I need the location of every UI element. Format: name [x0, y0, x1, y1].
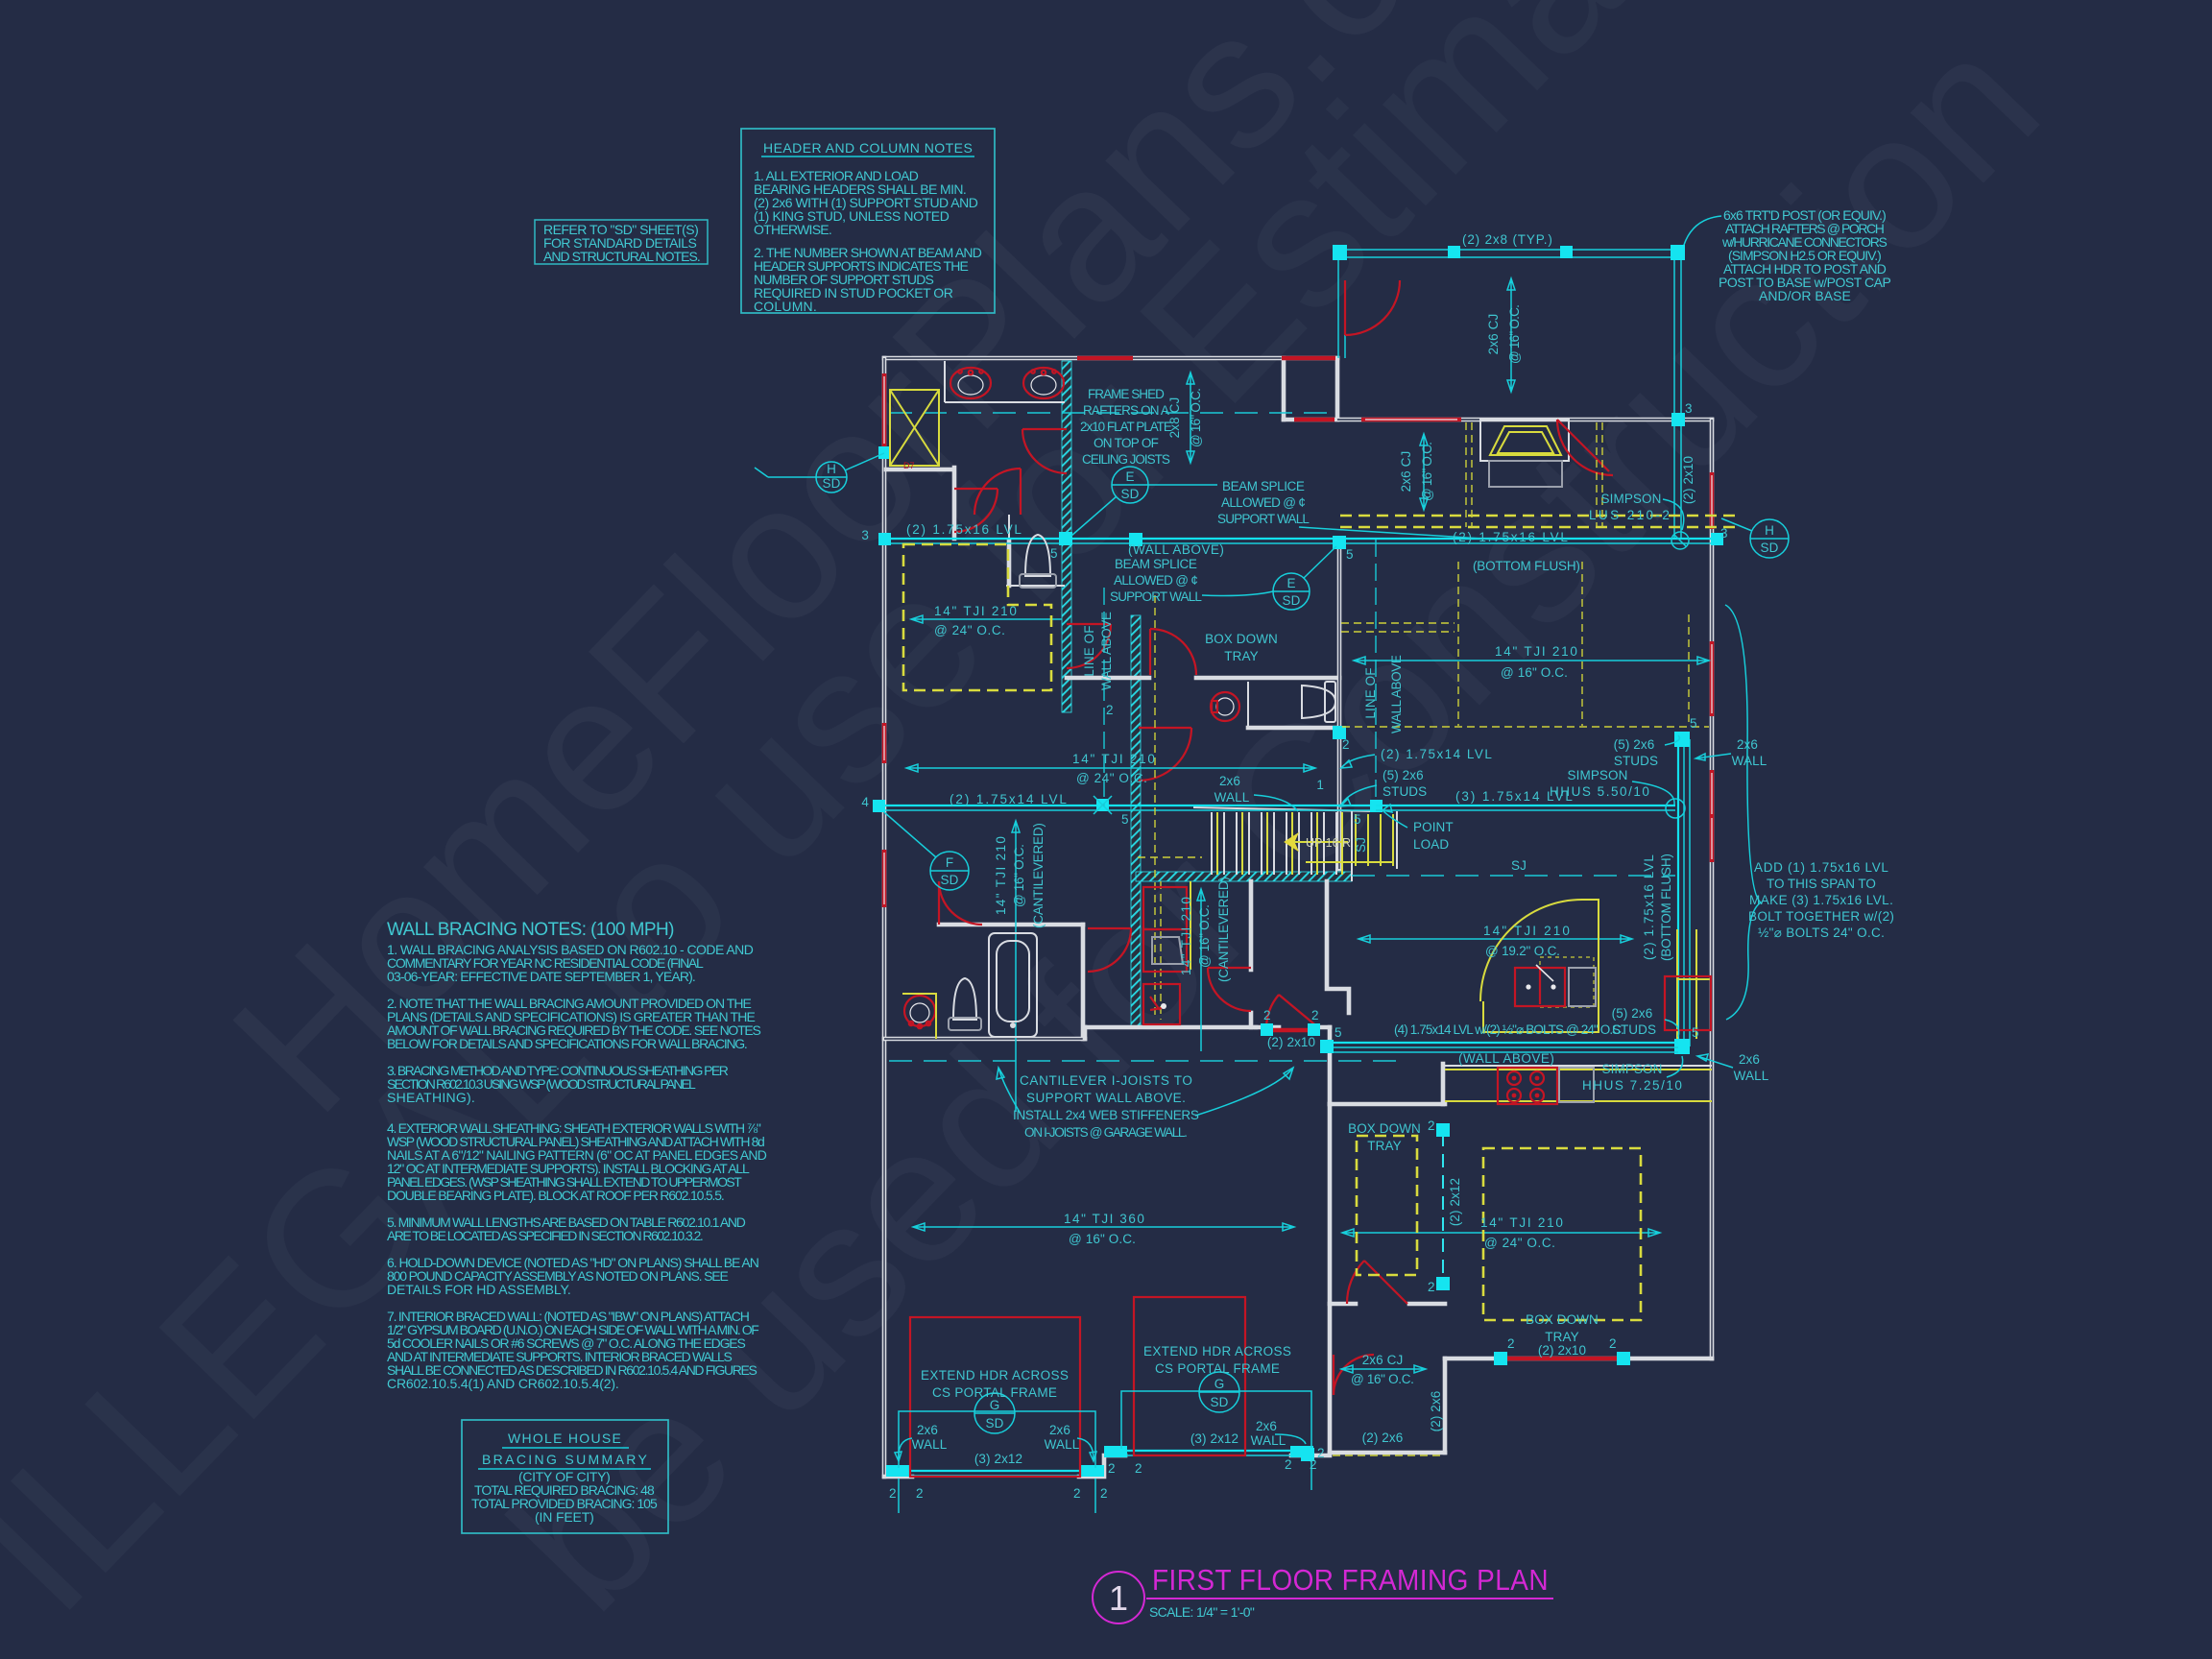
svg-text:WALL: WALL [1045, 1437, 1080, 1452]
svg-text:WALL: WALL [1214, 790, 1250, 805]
svg-text:(4) 1.75x14 LVL w/(2) ½"⌀ BOLT: (4) 1.75x14 LVL w/(2) ½"⌀ BOLTS @ 24" O.… [1394, 1022, 1624, 1037]
svg-text:2: 2 [1609, 1336, 1617, 1351]
svg-text:(5) 2x6: (5) 2x6 [1614, 737, 1655, 752]
svg-text:½"⌀ BOLTS 24" O.C.: ½"⌀ BOLTS 24" O.C. [1758, 926, 1885, 940]
svg-text:5: 5 [1692, 1025, 1699, 1040]
svg-text:ON I-JOISTS @ GARAGE WALL.: ON I-JOISTS @ GARAGE WALL. [1024, 1125, 1188, 1140]
svg-text:SD: SD [823, 476, 841, 491]
svg-text:(2) 1.75x16 LVL: (2) 1.75x16 LVL [1453, 530, 1568, 544]
svg-text:2: 2 [1263, 1008, 1271, 1022]
svg-text:@ 16" O.C.: @ 16" O.C. [1507, 304, 1522, 364]
svg-text:HEADER AND COLUMN NOTES: HEADER AND COLUMN NOTES [763, 140, 973, 156]
svg-text:2: 2 [1073, 1486, 1081, 1501]
svg-text:INSTALL 2x4 WEB STIFFENERS: INSTALL 2x4 WEB STIFFENERS [1013, 1108, 1199, 1122]
svg-text:E: E [1125, 469, 1134, 484]
svg-text:@ 24" O.C.: @ 24" O.C. [1484, 1236, 1555, 1250]
svg-text:SUPPORT WALL: SUPPORT WALL [1217, 512, 1310, 526]
svg-text:3: 3 [861, 528, 869, 542]
svg-text:ON TOP OF: ON TOP OF [1094, 436, 1159, 450]
svg-text:14" TJI 360: 14" TJI 360 [1064, 1212, 1144, 1226]
svg-text:(IN FEET): (IN FEET) [535, 1509, 594, 1525]
svg-text:@ 16" O.C.: @ 16" O.C. [1501, 665, 1568, 680]
svg-text:2: 2 [1428, 1280, 1435, 1294]
svg-text:H: H [827, 462, 836, 476]
svg-text:2x6: 2x6 [1737, 737, 1758, 752]
svg-text:WHOLE HOUSE: WHOLE HOUSE [508, 1431, 621, 1446]
svg-text:MAKE (3) 1.75x16 LVL.: MAKE (3) 1.75x16 LVL. [1749, 893, 1893, 907]
svg-text:(BOTTOM FLUSH): (BOTTOM FLUSH) [1473, 559, 1580, 573]
svg-text:@ 24" O.C.: @ 24" O.C. [934, 623, 1005, 637]
svg-text:3: 3 [1720, 526, 1728, 541]
svg-text:2x8 CJ: 2x8 CJ [1167, 397, 1182, 439]
svg-text:(CANTILEVERED): (CANTILEVERED) [1031, 823, 1046, 928]
svg-text:2x6: 2x6 [917, 1423, 938, 1437]
svg-text:5: 5 [1690, 716, 1697, 731]
svg-text:2: 2 [1135, 1461, 1142, 1476]
svg-text:CANTILEVER I-JOISTS TO: CANTILEVER I-JOISTS TO [1020, 1073, 1192, 1088]
svg-text:ALLOWED @ ¢: ALLOWED @ ¢ [1221, 495, 1306, 510]
svg-text:TRAY: TRAY [1224, 649, 1258, 663]
svg-text:WALL: WALL [1734, 1069, 1769, 1083]
svg-text:ADD (1) 1.75x16 LVL: ADD (1) 1.75x16 LVL [1754, 860, 1888, 875]
svg-text:DOUBLE BEARING PLATE). BLOCK A: DOUBLE BEARING PLATE). BLOCK AT ROOF PER… [387, 1188, 725, 1203]
svg-text:CEILING JOISTS: CEILING JOISTS [1082, 452, 1170, 467]
svg-text:2: 2 [1100, 1486, 1108, 1501]
svg-text:SD: SD [1283, 593, 1301, 608]
svg-text:HHUS 7.25/10: HHUS 7.25/10 [1582, 1078, 1682, 1093]
svg-text:2x6 CJ: 2x6 CJ [1486, 314, 1501, 355]
svg-text:BEAM SPLICE: BEAM SPLICE [1115, 557, 1197, 571]
svg-text:2x6 CJ: 2x6 CJ [1399, 451, 1413, 493]
svg-text:(2) 2x10: (2) 2x10 [1538, 1343, 1586, 1358]
svg-text:BELOW FOR DETAILS AND SPECIFIC: BELOW FOR DETAILS AND SPECIFICATIONS FOR… [387, 1036, 748, 1051]
svg-text:LINE OF: LINE OF [1363, 667, 1378, 718]
svg-text:BOX DOWN: BOX DOWN [1205, 632, 1278, 646]
svg-text:HHUS 5.50/10: HHUS 5.50/10 [1550, 784, 1649, 799]
svg-text:EXTEND HDR ACROSS: EXTEND HDR ACROSS [1143, 1344, 1291, 1358]
svg-text:2: 2 [1311, 1008, 1319, 1022]
svg-text:FIRST FLOOR FRAMING PLAN: FIRST FLOOR FRAMING PLAN [1152, 1563, 1549, 1597]
svg-text:2: 2 [1285, 1457, 1292, 1472]
svg-text:2: 2 [1507, 1336, 1515, 1351]
svg-text:WALL: WALL [1251, 1433, 1286, 1448]
svg-text:(2) 1.75x16 LVL: (2) 1.75x16 LVL [906, 522, 1022, 537]
svg-text:5: 5 [1334, 1025, 1342, 1040]
svg-text:SD: SD [1761, 541, 1779, 555]
svg-text:14" TJI 210: 14" TJI 210 [1072, 752, 1155, 766]
svg-text:WALL: WALL [1732, 754, 1767, 768]
svg-text:DETAILS FOR HD ASSEMBLY.: DETAILS FOR HD ASSEMBLY. [387, 1282, 571, 1297]
svg-text:(2) 2x6: (2) 2x6 [1362, 1431, 1404, 1445]
svg-text:@ 16" O.C.: @ 16" O.C. [1197, 904, 1212, 968]
svg-text:2x6 CJ: 2x6 CJ [1362, 1353, 1404, 1367]
svg-text:@ 19.2" O.C.: @ 19.2" O.C. [1485, 944, 1560, 958]
svg-text:2x10 FLAT PLATE: 2x10 FLAT PLATE [1080, 420, 1172, 434]
svg-text:(2) 2x10: (2) 2x10 [1681, 456, 1695, 504]
svg-text:14" TJI 210: 14" TJI 210 [1495, 644, 1577, 659]
svg-text:(2) 1.75x16 LVL: (2) 1.75x16 LVL [1642, 854, 1656, 960]
svg-text:(5) 2x6: (5) 2x6 [1612, 1006, 1653, 1021]
svg-text:SIMPSON: SIMPSON [1568, 768, 1628, 782]
svg-text:5: 5 [1121, 812, 1129, 827]
svg-text:@ 24" O.C.: @ 24" O.C. [1076, 771, 1147, 785]
svg-text:(2) 2x8 (TYP.): (2) 2x8 (TYP.) [1462, 232, 1552, 247]
svg-text:SCALE: 1/4" = 1'-0": SCALE: 1/4" = 1'-0" [1149, 1604, 1255, 1620]
svg-text:(2) 2x6: (2) 2x6 [1429, 1391, 1443, 1432]
svg-text:(WALL ABOVE): (WALL ABOVE) [1128, 542, 1224, 557]
svg-text:(3) 2x12: (3) 2x12 [1190, 1431, 1238, 1446]
svg-text:1: 1 [1316, 778, 1324, 792]
svg-text:1: 1 [1109, 1578, 1128, 1618]
svg-text:WALL ABOVE: WALL ABOVE [1099, 612, 1114, 690]
svg-text:03-06-YEAR: EFFECTIVE DATE SEP: 03-06-YEAR: EFFECTIVE DATE SEPTEMBER 1, … [387, 969, 696, 984]
svg-text:14" TJI 210: 14" TJI 210 [1179, 897, 1193, 975]
svg-text:TO THIS SPAN TO: TO THIS SPAN TO [1767, 877, 1876, 891]
svg-text:SJ: SJ [1354, 837, 1368, 853]
svg-text:@ 16" O.C.: @ 16" O.C. [1351, 1372, 1414, 1386]
svg-text:@ 16" O.C.: @ 16" O.C. [1189, 388, 1203, 447]
svg-text:5: 5 [1354, 812, 1361, 827]
svg-text:BOX DOWN: BOX DOWN [1348, 1121, 1421, 1136]
svg-text:2: 2 [1428, 1118, 1435, 1133]
svg-text:2: 2 [1317, 1446, 1325, 1460]
svg-text:2: 2 [1108, 1461, 1116, 1476]
svg-text:COLUMN.: COLUMN. [754, 299, 817, 314]
svg-text:3: 3 [1685, 401, 1693, 416]
svg-text:14" TJI 210: 14" TJI 210 [994, 836, 1008, 915]
svg-text:LINE OF: LINE OF [1082, 625, 1096, 676]
svg-text:BOLT TOGETHER w/(2): BOLT TOGETHER w/(2) [1748, 909, 1894, 924]
svg-text:AND STRUCTURAL NOTES.: AND STRUCTURAL NOTES. [543, 249, 701, 264]
svg-text:WALL: WALL [912, 1437, 948, 1452]
svg-text:SIMPSON: SIMPSON [1602, 1062, 1663, 1076]
svg-text:D7: D7 [903, 461, 915, 470]
svg-text:2x6: 2x6 [1049, 1423, 1070, 1437]
svg-text:BRACING SUMMARY: BRACING SUMMARY [482, 1452, 647, 1467]
svg-text:4: 4 [861, 795, 869, 809]
svg-text:SD: SD [1211, 1395, 1229, 1409]
svg-text:CR602.10.5.4(1) AND CR602.10.5: CR602.10.5.4(1) AND CR602.10.5.4(2). [387, 1376, 619, 1391]
svg-text:STUDS: STUDS [1382, 784, 1427, 799]
svg-text:(2) 2x12: (2) 2x12 [1448, 1178, 1462, 1226]
svg-text:LUS 210-2: LUS 210-2 [1589, 508, 1670, 522]
svg-text:SUPPORT WALL ABOVE.: SUPPORT WALL ABOVE. [1026, 1091, 1186, 1105]
svg-text:2: 2 [1106, 703, 1114, 717]
svg-text:H: H [1765, 523, 1774, 538]
svg-text:(2) 1.75x14 LVL: (2) 1.75x14 LVL [950, 792, 1067, 806]
svg-text:STUDS: STUDS [1612, 1022, 1656, 1037]
svg-text:@ 16" O.C.: @ 16" O.C. [1069, 1232, 1136, 1246]
svg-text:2: 2 [1342, 737, 1350, 752]
svg-text:(BOTTOM FLUSH): (BOTTOM FLUSH) [1659, 854, 1673, 961]
svg-text:EXTEND HDR ACROSS: EXTEND HDR ACROSS [921, 1368, 1069, 1382]
svg-text:SD: SD [986, 1416, 1004, 1431]
svg-text:ALLOWED @ ¢: ALLOWED @ ¢ [1114, 573, 1198, 588]
svg-text:5: 5 [1050, 546, 1058, 561]
svg-text:5: 5 [1346, 547, 1354, 562]
svg-text:OTHERWISE.: OTHERWISE. [754, 222, 832, 237]
svg-text:(CANTILEVERED): (CANTILEVERED) [1216, 877, 1231, 982]
svg-text:@ 16" O.C.: @ 16" O.C. [1012, 844, 1026, 907]
svg-text:SHEATHING).: SHEATHING). [387, 1090, 475, 1105]
svg-text:LOAD: LOAD [1413, 837, 1449, 852]
svg-text:14" TJI 210: 14" TJI 210 [1483, 924, 1570, 938]
svg-text:AND/OR BASE: AND/OR BASE [1759, 288, 1851, 303]
svg-text:2x6: 2x6 [1219, 774, 1240, 788]
svg-text:SD: SD [1121, 487, 1140, 501]
svg-text:RAFTERS ON A: RAFTERS ON A [1083, 403, 1169, 418]
svg-text:2x6: 2x6 [1256, 1419, 1277, 1433]
svg-text:SJ: SJ [1511, 858, 1527, 873]
svg-text:(5) 2x6: (5) 2x6 [1382, 768, 1424, 782]
svg-text:2x6: 2x6 [1739, 1052, 1760, 1067]
svg-text:F: F [946, 855, 953, 870]
svg-text:G: G [1214, 1377, 1225, 1391]
svg-text:STUDS: STUDS [1614, 754, 1658, 768]
svg-text:2: 2 [916, 1486, 924, 1501]
svg-text:TRAY: TRAY [1367, 1139, 1401, 1153]
svg-text:2: 2 [889, 1486, 897, 1501]
svg-text:14" TJI 210: 14" TJI 210 [1480, 1215, 1563, 1230]
svg-text:WALL BRACING NOTES: (100 MPH): WALL BRACING NOTES: (100 MPH) [387, 920, 675, 940]
svg-text:TRAY: TRAY [1545, 1330, 1578, 1344]
svg-text:(2) 2x10: (2) 2x10 [1267, 1035, 1315, 1049]
svg-text:BEAM SPLICE: BEAM SPLICE [1222, 479, 1305, 493]
svg-text:G: G [990, 1398, 1000, 1412]
svg-text:CS PORTAL FRAME: CS PORTAL FRAME [932, 1385, 1057, 1400]
svg-text:(2) 1.75x14 LVL: (2) 1.75x14 LVL [1381, 747, 1492, 761]
svg-text:POINT: POINT [1413, 820, 1454, 834]
svg-text:CS PORTAL FRAME: CS PORTAL FRAME [1155, 1361, 1280, 1376]
svg-text:2: 2 [1310, 1457, 1317, 1472]
svg-text:SIMPSON: SIMPSON [1601, 492, 1662, 506]
svg-text:BOX DOWN: BOX DOWN [1526, 1312, 1599, 1327]
svg-text:SD: SD [941, 873, 959, 887]
svg-text:SUPPORT WALL: SUPPORT WALL [1110, 589, 1202, 604]
svg-text:WALL ABOVE: WALL ABOVE [1389, 655, 1404, 733]
svg-text:(WALL ABOVE): (WALL ABOVE) [1458, 1051, 1554, 1066]
svg-text:@ 16" O.C.: @ 16" O.C. [1420, 442, 1434, 501]
svg-text:14" TJI 210: 14" TJI 210 [934, 604, 1017, 618]
svg-text:ARE TO BE LOCATED AS SPECIFIED: ARE TO BE LOCATED AS SPECIFIED IN SECTIO… [387, 1228, 704, 1243]
svg-text:FRAME SHED: FRAME SHED [1088, 387, 1165, 401]
svg-text:UP 16 R: UP 16 R [1306, 836, 1351, 850]
svg-text:E: E [1286, 576, 1295, 590]
svg-text:(3) 2x12: (3) 2x12 [974, 1452, 1022, 1466]
